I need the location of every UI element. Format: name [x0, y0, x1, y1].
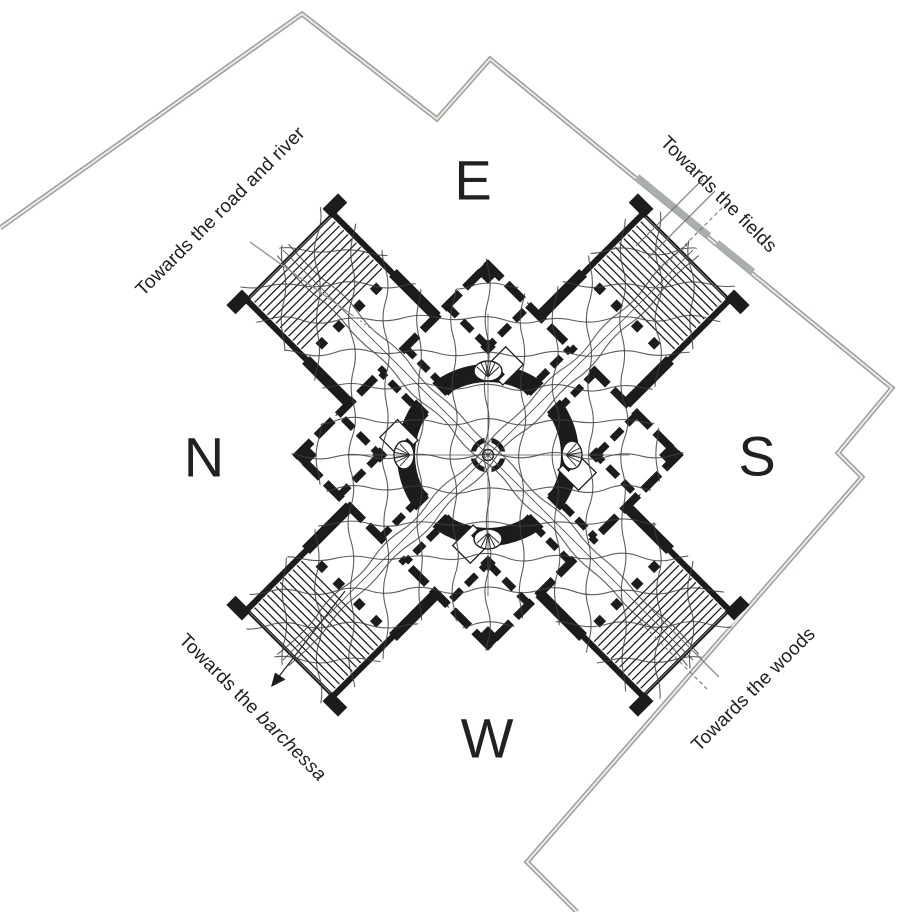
- villa-site-plan-drawing: [0, 0, 923, 912]
- compass-east: E: [454, 148, 491, 213]
- compass-south: S: [738, 424, 775, 489]
- arrowhead-icon: [271, 673, 286, 688]
- site-plan-diagram: E N S W Towards the road and river Towar…: [0, 0, 923, 912]
- compass-west: W: [461, 706, 514, 771]
- villa-plan: [0, 0, 923, 912]
- compass-north: N: [184, 425, 224, 490]
